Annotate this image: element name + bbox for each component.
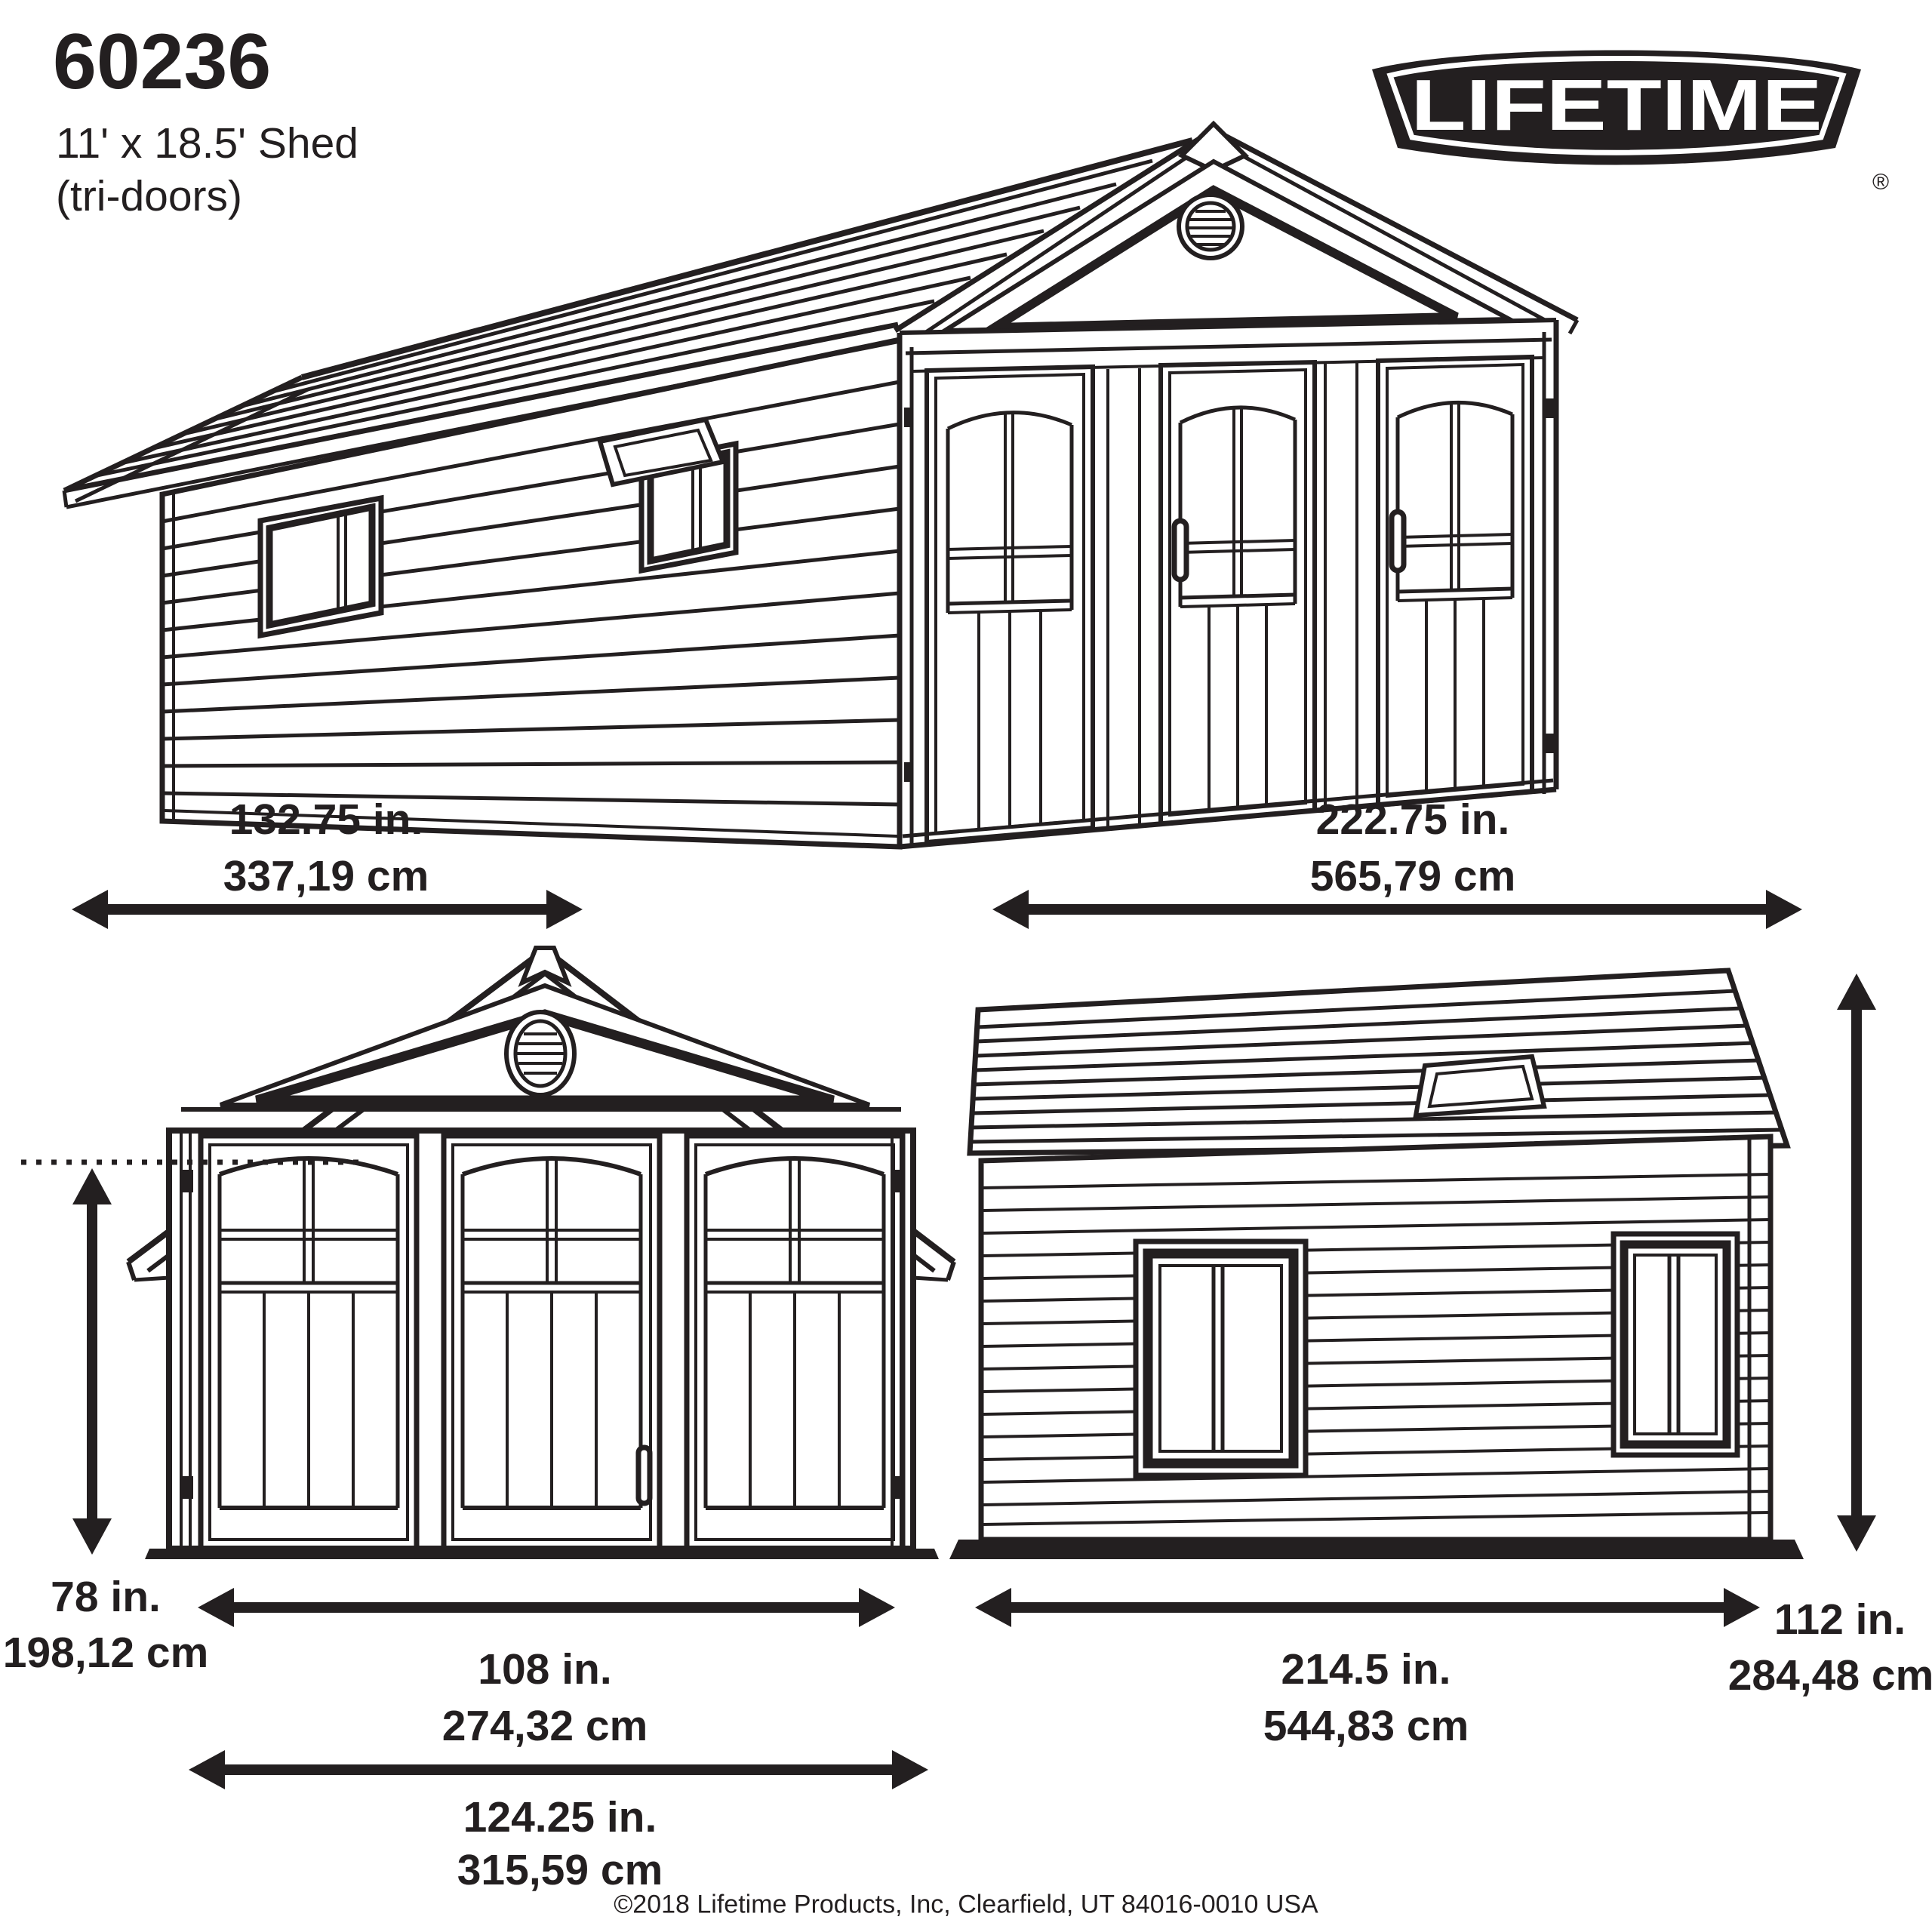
label-total-width-cm: 315,59 cm <box>457 1845 663 1895</box>
iso-hinge <box>904 762 913 782</box>
front-hinge <box>891 1170 901 1192</box>
arrow-front-door-width <box>198 1588 895 1627</box>
front-hinge <box>183 1170 193 1192</box>
side-window-1 <box>1136 1241 1306 1475</box>
line-art: LIFETIME <box>0 0 1932 1932</box>
lifetime-logo-text: LIFETIME <box>1411 65 1823 146</box>
front-gable-vent <box>506 1012 574 1095</box>
front-wall <box>145 1131 939 1559</box>
side-roof <box>970 971 1787 1153</box>
label-door-width-cm: 274,32 cm <box>442 1701 648 1751</box>
iso-front-wall <box>900 320 1556 847</box>
arrow-front-total-width <box>189 1750 928 1789</box>
front-door-handle <box>638 1447 650 1503</box>
front-hinge <box>891 1476 901 1499</box>
iso-hinge <box>1546 398 1555 418</box>
label-footprint-width-in: 132.75 in. <box>229 795 423 844</box>
side-wall <box>949 1137 1804 1559</box>
isometric-view <box>64 124 1577 847</box>
label-total-width-in: 124.25 in. <box>463 1792 657 1842</box>
label-side-length-in: 214.5 in. <box>1281 1644 1451 1694</box>
label-door-width-in: 108 in. <box>478 1644 611 1694</box>
front-hinge <box>183 1476 193 1499</box>
product-variant: (tri-doors) <box>56 172 242 222</box>
side-elevation-view <box>949 971 1804 1559</box>
side-window-2 <box>1614 1234 1737 1455</box>
iso-hinge <box>1546 734 1555 753</box>
registered-trademark: ® <box>1872 170 1889 195</box>
label-side-height-cm: 284,48 cm <box>1728 1651 1932 1700</box>
side-ground-bar <box>949 1540 1804 1559</box>
page: { "header": { "model_number": "60236", "… <box>0 0 1932 1932</box>
label-footprint-length-cm: 565,79 cm <box>1310 851 1516 901</box>
front-ridge-cap <box>522 948 568 983</box>
lifetime-logo: LIFETIME <box>1372 51 1861 165</box>
arrow-side-height <box>1837 974 1876 1552</box>
iso-door-3-handle <box>1392 512 1404 571</box>
label-side-height-in: 112 in. <box>1774 1595 1906 1644</box>
front-elevation-view <box>21 948 954 1559</box>
iso-door-2-handle <box>1174 521 1186 580</box>
side-roof-skylight <box>1416 1057 1544 1115</box>
label-footprint-width-cm: 337,19 cm <box>223 851 429 901</box>
label-footprint-length-in: 222.75 in. <box>1316 795 1510 844</box>
model-number: 60236 <box>53 21 271 103</box>
front-ground-bar <box>145 1549 939 1559</box>
iso-gable-vent <box>1179 195 1242 258</box>
label-side-length-cm: 544,83 cm <box>1263 1701 1469 1751</box>
arrow-side-length <box>975 1588 1760 1627</box>
product-size: 11' x 18.5' Shed <box>56 119 358 169</box>
label-front-height-cm: 198,12 cm <box>3 1628 209 1678</box>
label-front-height-in: 78 in. <box>51 1572 161 1622</box>
iso-hinge <box>904 408 913 427</box>
copyright-line: ©2018 Lifetime Products, Inc, Clearfield… <box>614 1890 1318 1920</box>
iso-side-window-1 <box>260 498 381 635</box>
arrow-front-height <box>72 1168 112 1555</box>
